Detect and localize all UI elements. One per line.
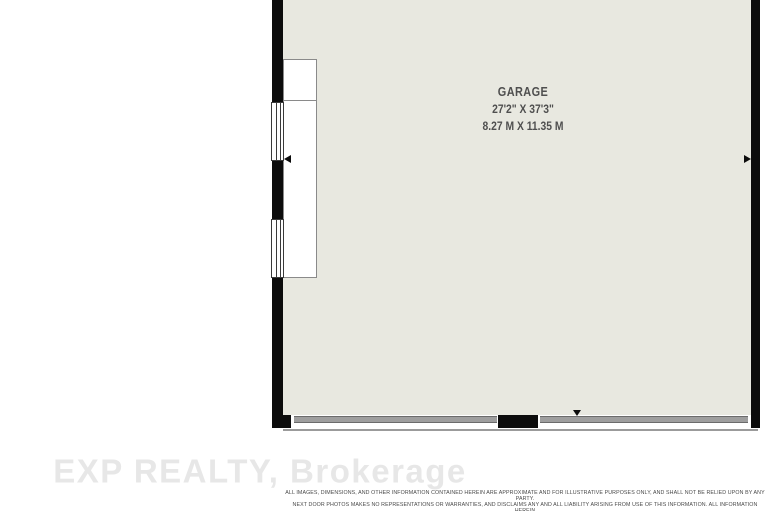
- left-wall-upper-segment: [272, 0, 283, 102]
- left-wall-lower-segment: [272, 278, 283, 428]
- disclaimer-line-1: ALL IMAGES, DIMENSIONS, AND OTHER INFORM…: [285, 490, 765, 502]
- disclaimer-line-2: NEXT DOOR PHOTOS MAKES NO REPRESENTATION…: [285, 502, 765, 511]
- room-label-block: GARAGE 27'2" X 37'3" 8.27 M X 11.35 M: [423, 84, 623, 133]
- window-icon: [271, 219, 284, 278]
- arrow-marker-icon: [284, 155, 291, 163]
- left-alcove-upper: [283, 59, 317, 101]
- exterior-face-line: [283, 429, 758, 431]
- garage-door-left: [294, 416, 497, 423]
- garage-floor-area: [283, 0, 751, 415]
- window-pane-lines: [276, 103, 281, 160]
- bottom-wall-center-pier: [498, 415, 538, 428]
- window-pane-lines: [276, 220, 281, 277]
- window-icon: [271, 102, 284, 161]
- arrow-marker-icon: [744, 155, 751, 163]
- disclaimer-text: ALL IMAGES, DIMENSIONS, AND OTHER INFORM…: [285, 490, 765, 511]
- bottom-wall-left-stub: [272, 415, 291, 428]
- room-name-label: GARAGE: [439, 84, 607, 99]
- left-wall-middle-segment: [272, 161, 283, 219]
- floor-plan-page: GARAGE 27'2" X 37'3" 8.27 M X 11.35 M EX…: [0, 0, 767, 511]
- brokerage-watermark: EXP REALTY, Brokerage: [0, 452, 520, 490]
- room-dimensions-imperial: 27'2" X 37'3": [437, 102, 609, 116]
- left-alcove-lower: [283, 100, 317, 278]
- garage-door-right: [540, 416, 748, 423]
- right-wall: [751, 0, 760, 428]
- arrow-marker-icon: [573, 410, 581, 416]
- room-dimensions-metric: 8.27 M X 11.35 M: [437, 119, 609, 133]
